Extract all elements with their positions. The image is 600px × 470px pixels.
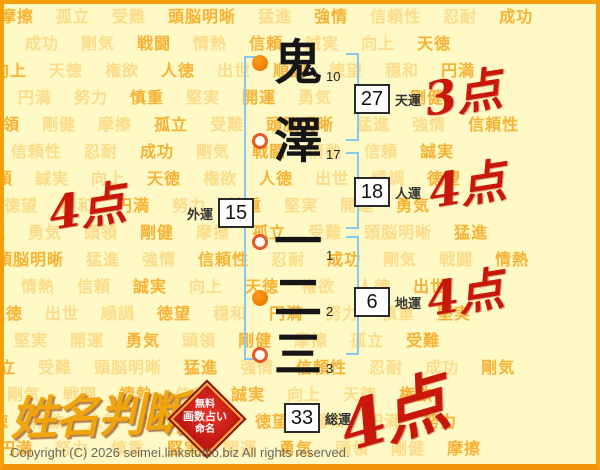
- fortune-chiun: 6 地運: [354, 287, 421, 317]
- bg-word: 忍耐: [443, 4, 477, 31]
- fortune-label: 外運: [187, 204, 213, 223]
- bg-word: 成功: [140, 139, 174, 166]
- bg-word: 忍耐: [84, 139, 118, 166]
- stroke-count: 17: [326, 147, 340, 162]
- bg-word: 信頼: [0, 166, 13, 193]
- bg-word: 向上: [189, 274, 223, 301]
- bg-word: 徳望: [157, 301, 191, 328]
- score-gaiun: 4点: [43, 166, 128, 243]
- bg-word: 摩擦: [0, 4, 34, 31]
- fortune-label: 天運: [395, 90, 421, 109]
- stroke-count: 3: [326, 361, 333, 376]
- seal-text: 無料 画数占い 命名: [169, 381, 241, 453]
- bg-word: 信頼: [77, 274, 111, 301]
- name-char-row: 二 2: [252, 269, 333, 327]
- bg-word: 穏和: [213, 301, 247, 328]
- fortune-tenun: 27 天運: [354, 84, 421, 114]
- name-char-row: 一 1: [252, 213, 333, 271]
- bg-word: 剛気: [383, 247, 417, 274]
- fortune-value-box: 33: [284, 403, 320, 433]
- stroke-count: 10: [326, 69, 340, 84]
- bg-word: 孤立: [56, 4, 90, 31]
- bg-word: 慎重: [130, 85, 164, 112]
- stroke-marker-icon: [252, 347, 268, 363]
- score-jinun: 4点: [423, 144, 508, 221]
- bg-word: 天徳: [49, 58, 83, 85]
- bg-word: 努力: [74, 85, 108, 112]
- bg-word: 猛進: [258, 4, 292, 31]
- score-tenun: 3点: [419, 52, 504, 129]
- fortune-value-box: 15: [218, 198, 254, 228]
- bg-word: 受難: [112, 4, 146, 31]
- bg-word: 堅実: [186, 85, 220, 112]
- bg-word: 頭領: [0, 112, 20, 139]
- bg-word: 強情: [314, 4, 348, 31]
- free-naming-seal: 無料 画数占い 命名: [169, 381, 241, 453]
- bg-word: 剛気: [481, 355, 515, 382]
- bg-word: 人徳: [0, 301, 23, 328]
- bg-word: 情熱: [193, 31, 227, 58]
- fortune-label: 地運: [395, 293, 421, 312]
- name-char-row: 澤 17: [252, 112, 340, 170]
- bg-word: 開運: [70, 328, 104, 355]
- bg-word: 権欲: [105, 58, 139, 85]
- bg-word: 情熱: [21, 274, 55, 301]
- bg-word: 頭領: [182, 328, 216, 355]
- bg-word: 天徳: [417, 31, 451, 58]
- name-character: 澤: [274, 112, 322, 170]
- name-character: 三: [274, 326, 322, 384]
- bg-word: 忍耐: [0, 31, 3, 58]
- stroke-marker-icon: [252, 55, 268, 71]
- bg-word: 徳望: [4, 193, 38, 220]
- bg-word: 摩擦: [98, 112, 132, 139]
- stroke-count: 2: [326, 304, 333, 319]
- bg-word: 猛進: [356, 112, 390, 139]
- name-character: 二: [274, 269, 322, 327]
- bg-word: 信頼性: [370, 4, 421, 31]
- bg-word: 剛健: [42, 112, 76, 139]
- bg-word: 剛気: [81, 31, 115, 58]
- bg-word: 孤立: [154, 112, 188, 139]
- bg-word: 成功: [25, 31, 59, 58]
- bg-word: 受難: [210, 112, 244, 139]
- bg-word: 受難: [38, 355, 72, 382]
- fortune-jinun: 18 人運: [354, 177, 421, 207]
- bg-word: 孤立: [0, 355, 16, 382]
- fortune-value-box: 27: [354, 84, 390, 114]
- bg-word: 猛進: [86, 247, 120, 274]
- bg-word: 人徳: [161, 58, 195, 85]
- bg-word: 順調: [101, 301, 135, 328]
- bg-word: 猛進: [184, 355, 218, 382]
- bg-word: 向上: [0, 58, 27, 85]
- bg-word: 情熱: [495, 247, 529, 274]
- bg-word: 剛健: [140, 220, 174, 247]
- score-chiun: 4点: [421, 252, 506, 329]
- bg-word: 勇気: [126, 328, 160, 355]
- fortune-value-box: 6: [354, 287, 390, 317]
- stroke-count: 1: [326, 248, 333, 263]
- bg-word: 頭脳明晰: [364, 220, 432, 247]
- fortune-value-box: 18: [354, 177, 390, 207]
- bg-word: 強情: [142, 247, 176, 274]
- bg-word: 天徳: [0, 409, 9, 436]
- bg-word: 猛進: [454, 220, 488, 247]
- seal-line: 画数占い: [183, 411, 227, 423]
- name-character: 鬼: [274, 34, 322, 92]
- bg-word: 信頼性: [198, 247, 249, 274]
- seal-line: 命名: [195, 424, 215, 435]
- site-logo[interactable]: 姓名判断: [9, 377, 187, 449]
- bg-word: 戦闘: [137, 31, 171, 58]
- stroke-marker-icon: [252, 234, 268, 250]
- bg-word: 信頼: [364, 139, 398, 166]
- stroke-marker-icon: [252, 133, 268, 149]
- seimei-handan-result-page: 摩擦孤立受難頭脳明晰猛進強情信頼性忍耐成功忍耐成功剛気戦闘情熱信頼誠実向上天徳向…: [0, 0, 600, 470]
- bg-word: 円満: [18, 85, 52, 112]
- bg-word: 剛気: [196, 139, 230, 166]
- bg-word: 権欲: [203, 166, 237, 193]
- bg-word: 人徳: [259, 166, 293, 193]
- name-character: 一: [274, 213, 322, 271]
- bg-word: 誠実: [133, 274, 167, 301]
- seal-line: 無料: [195, 399, 215, 410]
- bg-word: 頭脳明晰: [0, 247, 64, 274]
- bg-word: 堅実: [14, 328, 48, 355]
- bg-word: 信頼性: [11, 139, 62, 166]
- fortune-gaiun: 外運 15: [187, 198, 254, 228]
- bg-word: 出世: [315, 166, 349, 193]
- bg-word: 向上: [361, 31, 395, 58]
- name-char-row: 鬼 10: [252, 34, 340, 92]
- copyright-text: Copyright (C) 2026 seimei.linkstudio.biz…: [10, 445, 350, 460]
- bg-word: 開運: [0, 220, 6, 247]
- stroke-marker-icon: [252, 290, 268, 306]
- bg-row: 摩擦孤立受難頭脳明晰猛進強情信頼性忍耐成功: [0, 4, 600, 31]
- bg-word: 穏和: [385, 58, 419, 85]
- bg-word: 成功: [499, 4, 533, 31]
- bg-word: 頭脳明晰: [168, 4, 236, 31]
- bg-word: 出世: [45, 301, 79, 328]
- fortune-label: 人運: [395, 183, 421, 202]
- bg-word: 天徳: [147, 166, 181, 193]
- name-char-row: 三 3: [252, 326, 333, 384]
